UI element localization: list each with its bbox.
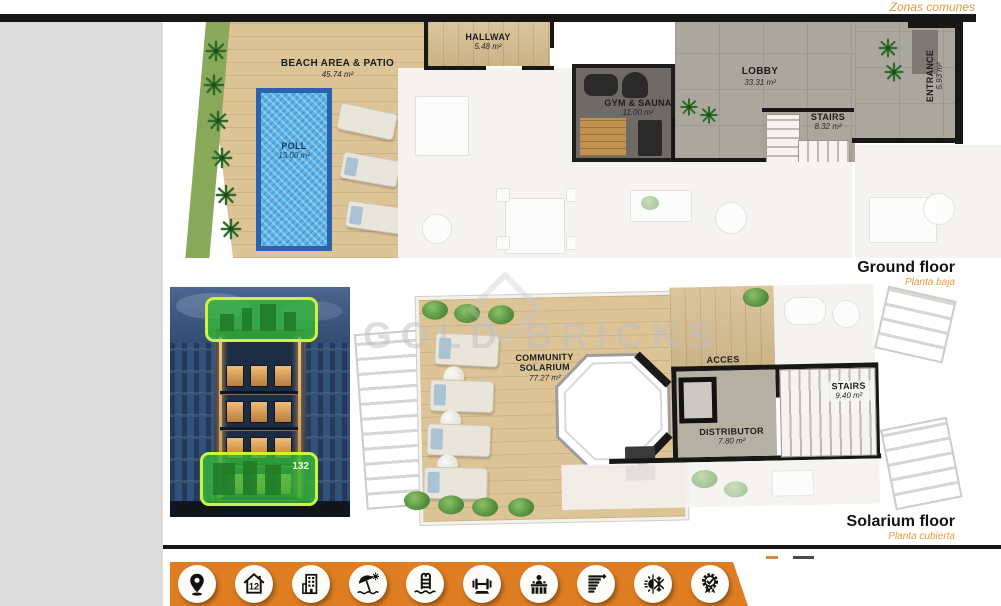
beach-area-label: BEACH AREA & PATIO 45.74 m² — [255, 58, 420, 79]
beach-icon-button[interactable] — [349, 565, 387, 603]
plant-icon — [882, 60, 906, 84]
house-12-units-icon: 12 — [241, 571, 267, 597]
plant-icon — [876, 36, 900, 60]
location-icon-button[interactable] — [178, 565, 216, 603]
palm-tree-icon — [218, 216, 244, 242]
faded-bush — [724, 481, 748, 497]
certificate-icon-button[interactable] — [691, 565, 729, 603]
faded-terrace — [561, 458, 880, 510]
palm-tree-icon — [209, 145, 235, 171]
elevator — [678, 377, 717, 424]
stairs-label: STAIRS 9.40 m² — [825, 381, 873, 402]
sun-lounger — [423, 467, 487, 500]
zonas-comunes-label: Zonas comunes — [890, 0, 975, 14]
left-gray-panel — [0, 22, 163, 606]
faded-chair — [496, 188, 510, 202]
distributor-label: DISTRIBUTOR 7.80 m² — [691, 426, 771, 448]
solarium-title-block: Solarium floor Planta cubierta — [847, 514, 955, 543]
small-mark — [793, 556, 814, 559]
residential-building-icon — [298, 571, 324, 597]
solarium-floor-title: Solarium floor — [847, 514, 955, 531]
faded-apartment-area — [398, 68, 575, 258]
energy-rating-icon — [583, 571, 609, 597]
pool: POLL 13.00 m² — [256, 88, 332, 251]
faded-seat — [784, 296, 827, 325]
gym-sauna-room: GYM & SAUNA 11.00 m² — [572, 64, 675, 162]
weight-rack — [638, 120, 662, 156]
stairs-label: STAIRS 8.32 m² — [798, 112, 858, 132]
building-night-photo: 132 — [170, 287, 350, 517]
amenities-icon-bar: 12 — [170, 562, 755, 606]
distributor-room: DISTRIBUTOR 7.80 m² — [676, 370, 777, 458]
faded-table — [422, 214, 452, 244]
faded-table — [715, 202, 747, 234]
faded-plant — [641, 196, 659, 210]
pool-label: POLL 13.00 m² — [261, 141, 327, 161]
wall — [550, 22, 554, 48]
energy-rating-icon-button[interactable] — [577, 565, 615, 603]
faded-chair — [496, 236, 510, 250]
quality-badge-icon — [697, 571, 723, 597]
sun-lounger — [429, 379, 494, 413]
pool-icon-button[interactable] — [406, 565, 444, 603]
climate-icon-button[interactable] — [634, 565, 672, 603]
wall — [955, 22, 963, 144]
wall — [852, 138, 963, 143]
ground-floor-highlight: 132 — [200, 452, 318, 506]
wall — [424, 22, 428, 70]
palm-tree-icon — [203, 38, 229, 64]
gym-label: GYM & SAUNA 11.00 m² — [602, 98, 674, 118]
sun-snowflake-climate-icon — [640, 571, 666, 597]
faded-apartment-area — [855, 145, 1001, 258]
faded-seat — [771, 470, 814, 497]
pool-ladder-icon — [412, 571, 438, 597]
solarium-floor-subtitle: Planta cubierta — [847, 531, 955, 543]
palm-tree-icon — [213, 182, 239, 208]
bottom-divider-bar — [163, 545, 1001, 549]
building-icon-button[interactable] — [292, 565, 330, 603]
faded-bed — [415, 96, 469, 156]
faded-sofa — [630, 190, 692, 222]
reception-desk-icon — [526, 571, 552, 597]
units-12-icon-button[interactable]: 12 — [235, 565, 273, 603]
gym-equipment — [622, 72, 648, 98]
faded-dining-table — [505, 198, 565, 254]
plant-icon — [678, 96, 700, 118]
small-mark — [766, 556, 778, 559]
solarium-highlight — [205, 297, 318, 342]
location-pin-icon — [184, 571, 210, 597]
entrance-label: ENTRANCE 5.93 m² — [925, 31, 945, 121]
top-wall-bar — [0, 14, 976, 22]
watermark-text: GOLD BRICKS — [363, 315, 721, 357]
faded-table — [832, 300, 861, 329]
brochure-page: Zonas comunes BEACH AREA & PATIO 45.74 m… — [0, 0, 1001, 606]
reception-icon-button[interactable] — [520, 565, 558, 603]
lobby-label: LOBBY 33.31 m² — [715, 66, 805, 87]
palm-tree-icon — [205, 108, 231, 134]
hallway-label: HALLWAY 5.48 m² — [438, 32, 538, 52]
ground-floor-title: Ground floor — [857, 260, 955, 277]
sauna-bench — [580, 118, 626, 156]
floor-badge: 132 — [292, 461, 309, 472]
octagon-skylight — [552, 350, 674, 472]
faded-compass — [923, 193, 955, 225]
stairs-room: STAIRS 9.40 m² — [779, 367, 877, 457]
palm-tree-icon — [201, 72, 227, 98]
sun-lounger — [426, 423, 491, 457]
faded-terrace — [774, 283, 876, 365]
faded-apartment-area — [575, 162, 852, 258]
beach-umbrella-icon — [355, 571, 381, 597]
wall — [424, 66, 486, 70]
pergola-structure — [880, 417, 963, 511]
gym-equipment — [584, 74, 618, 96]
gym-icon-button[interactable] — [463, 565, 501, 603]
dumbbell-icon — [469, 571, 495, 597]
wall — [522, 66, 554, 70]
pergola-structure — [874, 286, 956, 364]
plant-icon — [698, 104, 720, 126]
svg-text:12: 12 — [249, 581, 259, 591]
wall — [908, 22, 960, 28]
faded-bush — [691, 470, 717, 489]
